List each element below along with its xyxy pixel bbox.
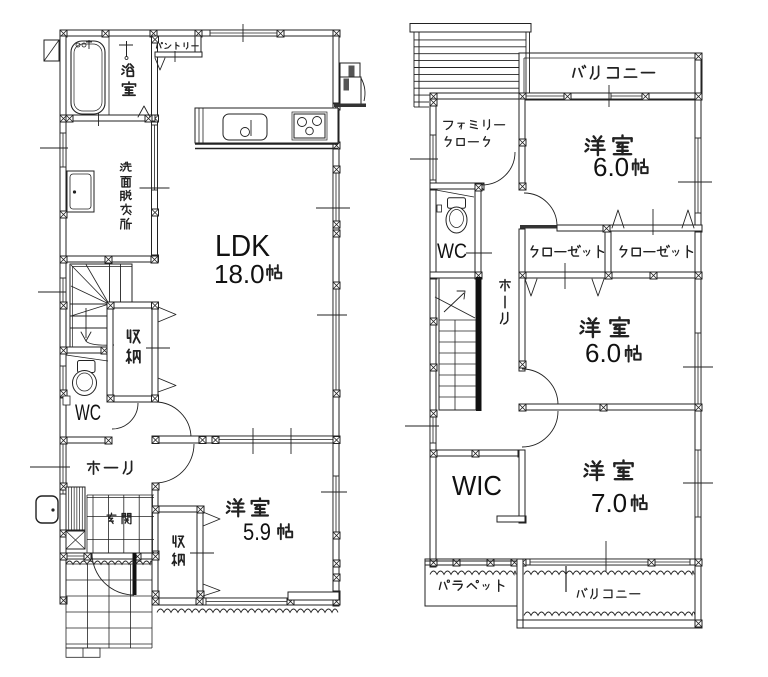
svg-text:WC: WC [437,240,467,263]
svg-text:6.0: 6.0 [585,338,621,368]
svg-text:7.0: 7.0 [591,488,627,518]
svg-text:LDK: LDK [215,228,270,263]
svg-text:5.9: 5.9 [243,519,271,546]
svg-text:6.0: 6.0 [593,152,629,182]
svg-text:18.0: 18.0 [214,259,265,289]
svg-text:WIC: WIC [452,470,502,501]
svg-text:WC: WC [75,400,101,425]
